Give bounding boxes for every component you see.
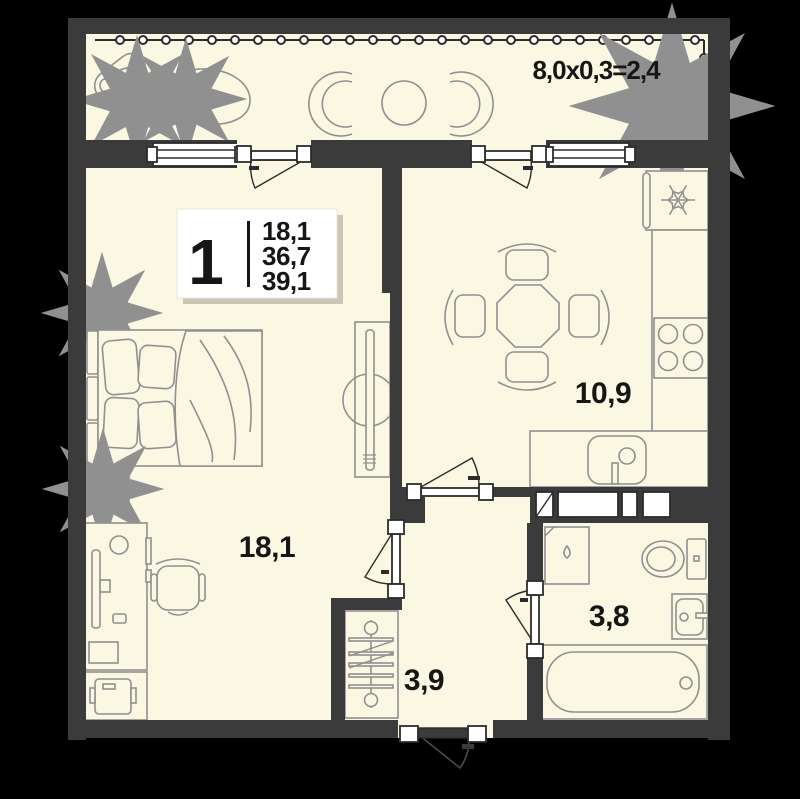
left-wall [68, 18, 86, 740]
vent-duct-icon [622, 492, 637, 517]
bathroom-area-label: 3,8 [589, 600, 629, 633]
floor-plan: 8,0x0,3=2,4 [0, 0, 800, 799]
info-box: 1 18,1 36,7 39,1 [177, 209, 343, 304]
vent-duct-icon [643, 492, 670, 517]
kitchen-sink-icon [588, 436, 646, 484]
desk-icon [85, 523, 151, 670]
right-wall [708, 18, 730, 740]
window-icon [543, 143, 635, 166]
niche-wall [331, 610, 345, 720]
vent-duct-icon [558, 492, 618, 517]
bathroom-sink-icon [672, 594, 708, 639]
window-icon [147, 143, 245, 166]
bed-icon [87, 330, 262, 466]
dining-table-icon [497, 285, 559, 347]
info-box-divider [247, 221, 250, 287]
vent-shaft-wall [530, 487, 708, 523]
plant-icon [86, 297, 118, 329]
bathtub-icon [540, 645, 707, 719]
hallway-area-label: 3,9 [404, 664, 444, 697]
wardrobe-icon [345, 611, 398, 718]
living-kitchen-wall [382, 168, 402, 293]
floor-plan-svg: 8,0x0,3=2,4 [0, 0, 800, 799]
balcony-plant-icon [170, 83, 202, 115]
balcony-slab-wall [86, 18, 730, 34]
kitchen-hall-wall [492, 487, 530, 497]
info-value-3: 39,1 [262, 266, 311, 296]
bathroom-wall [527, 523, 543, 583]
balcony-dimension-label: 8,0x0,3=2,4 [532, 55, 661, 85]
toilet-icon [642, 539, 706, 579]
kitchen-area-label: 10,9 [575, 377, 631, 410]
balcony-plant-icon [645, 79, 699, 133]
stove-icon [654, 318, 708, 378]
fridge-icon [643, 171, 708, 230]
plant-icon [87, 473, 119, 505]
washing-machine-icon [545, 527, 589, 584]
living-hall-wall [390, 293, 402, 525]
printer-table-icon [85, 672, 147, 720]
niche-wall [331, 598, 402, 610]
living-room-area-label: 18,1 [239, 531, 295, 564]
rooms-count-label: 1 [188, 226, 224, 298]
